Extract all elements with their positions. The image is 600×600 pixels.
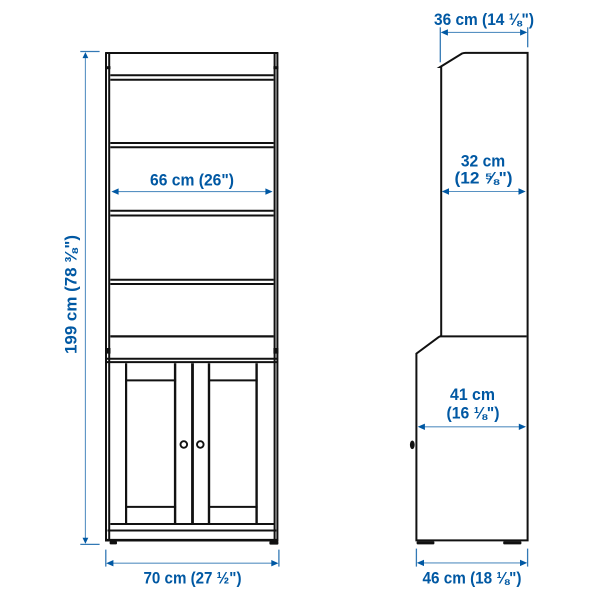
svg-text:(16 ⅛"): (16 ⅛") <box>447 404 500 423</box>
svg-text:70 cm (27 ½"): 70 cm (27 ½") <box>144 568 242 587</box>
svg-text:36 cm (14 ⅛"): 36 cm (14 ⅛") <box>434 10 534 29</box>
svg-text:(12 ⅝"): (12 ⅝") <box>455 168 513 187</box>
svg-text:46 cm (18 ⅛"): 46 cm (18 ⅛") <box>423 568 522 587</box>
svg-text:66 cm (26"): 66 cm (26") <box>150 170 234 189</box>
svg-text:41 cm: 41 cm <box>450 385 495 404</box>
svg-text:199 cm (78 ⅜"): 199 cm (78 ⅜") <box>62 235 81 354</box>
